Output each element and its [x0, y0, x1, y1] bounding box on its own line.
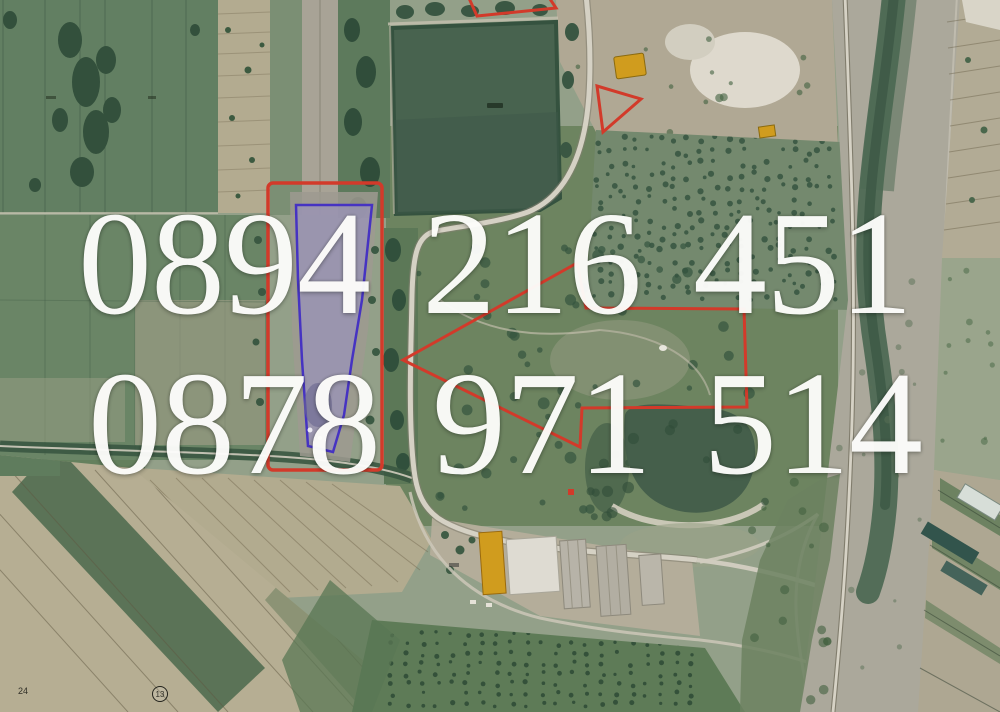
tree-dot [963, 268, 969, 274]
tree-dot [600, 654, 604, 658]
tree-dot [585, 692, 589, 696]
tree-dot [493, 705, 497, 709]
white-building [506, 536, 560, 594]
tree-dot [557, 671, 562, 676]
tree-dot [675, 690, 680, 695]
tree-dot [598, 692, 602, 696]
tree-dot [420, 630, 424, 634]
tree-dot [986, 330, 991, 335]
tree-dot [480, 641, 485, 646]
tree-dot [990, 362, 995, 367]
tree-dot [662, 161, 666, 165]
bare-terrain-top [556, 0, 838, 152]
tree-dot [708, 171, 714, 177]
tree-dot [740, 163, 745, 168]
tree-dot [524, 705, 527, 708]
tree-dot [481, 700, 485, 704]
tree-dot [696, 149, 701, 154]
tree-dot [897, 644, 902, 649]
tree-dot [674, 702, 678, 706]
tree-dot [742, 147, 746, 151]
tree-dot [435, 642, 438, 645]
tree-dot [510, 693, 513, 696]
tree-dot [554, 652, 558, 656]
orange-warehouse [479, 531, 506, 594]
tree-dot [511, 702, 516, 707]
tree-dot [817, 626, 826, 635]
tree-dot [739, 174, 745, 180]
tree-dot [617, 681, 622, 686]
tree-dot [421, 654, 424, 657]
tree-dot [711, 159, 715, 163]
tree-dot [448, 632, 451, 635]
tree-dot [819, 685, 829, 695]
scrub-right-middle [934, 258, 1000, 480]
tree-dot [751, 169, 756, 174]
tree-dot [437, 681, 441, 685]
tree-dot [632, 165, 636, 169]
tree-dot [947, 343, 952, 348]
tree-dot [823, 637, 831, 645]
tree-dot [788, 165, 792, 169]
tree-dot [570, 670, 574, 674]
tree-dot [606, 172, 610, 176]
tree-dot [671, 138, 676, 143]
tree-dot [819, 523, 829, 533]
tree-dot [585, 671, 590, 676]
tree-dot [434, 630, 437, 633]
tree-dot [683, 135, 689, 141]
tree-dot [966, 338, 971, 343]
tree-dot [526, 640, 530, 644]
tree-dot [614, 692, 619, 697]
watermark-phone-2: 0878 971 514 [88, 350, 922, 498]
tree-dot [671, 165, 675, 169]
tree-dot [710, 70, 714, 74]
tree-dot [542, 681, 546, 685]
tree-dot [569, 693, 574, 698]
tree-dot [632, 138, 636, 142]
tree-dot [715, 94, 723, 102]
tree-dot [449, 660, 452, 663]
tree-dot [466, 671, 470, 675]
tree-dot [478, 691, 482, 695]
tree-dot [569, 640, 573, 644]
tree-dot [797, 90, 803, 96]
tree-dot [591, 513, 598, 520]
tree-dot [388, 702, 392, 706]
tree-dot [465, 651, 470, 656]
tree-dot [673, 673, 677, 677]
tree-dot [779, 617, 787, 625]
tree-dot [464, 701, 469, 706]
tree-dot [659, 135, 664, 140]
tree-dot [602, 673, 606, 677]
tree-dot [688, 673, 692, 677]
tree-dot [464, 691, 468, 695]
tree-dot [677, 680, 682, 685]
tree-dot [403, 662, 408, 667]
tree-dot [632, 176, 636, 180]
tree-dot [814, 147, 820, 153]
circled-plot-number-label: 13 [156, 690, 165, 699]
tree-dot [688, 661, 693, 666]
tree-dot [645, 643, 649, 647]
tree-dot [463, 642, 467, 646]
tree-dot [659, 682, 663, 686]
tree-dot [478, 651, 483, 656]
tree-dot [524, 663, 529, 668]
tree-dot [646, 654, 650, 658]
tree-dot [629, 700, 634, 705]
tree-dot [948, 277, 952, 281]
tree-dot [725, 148, 731, 154]
tree-dot [710, 147, 715, 152]
tree-dot [600, 702, 605, 707]
tree-dot [434, 654, 439, 659]
tree-dot [599, 641, 604, 646]
tree-dot [848, 587, 854, 593]
tree-dot [606, 148, 611, 153]
tree-dot [814, 164, 818, 168]
tree-dot [595, 141, 601, 147]
tree-dot [613, 641, 616, 644]
tree-dot [764, 159, 770, 165]
tree-dot [675, 651, 680, 656]
tree-dot [739, 138, 745, 144]
tree-dot [599, 679, 604, 684]
tree-dot [752, 165, 757, 170]
tree-dot [576, 65, 581, 70]
tree-dot [419, 660, 424, 665]
tree-dot [481, 682, 486, 687]
tree-dot [687, 700, 692, 705]
tree-dot [406, 704, 411, 709]
tree-dot [495, 684, 500, 689]
tree-dot [479, 632, 484, 637]
tree-dot [553, 683, 557, 687]
tree-dot [631, 684, 636, 689]
tree-dot [422, 642, 427, 647]
tree-dot [579, 505, 587, 513]
tree-dot [632, 692, 637, 697]
tree-dot [659, 702, 662, 705]
tree-dot [918, 518, 922, 522]
tree-dot [675, 151, 681, 157]
tree-dot [727, 175, 733, 181]
tree-dot [629, 671, 633, 675]
tree-dot [650, 135, 654, 139]
aerial-map: 24 13 [0, 0, 1000, 712]
tree-dot [643, 694, 647, 698]
tree-dot [495, 670, 500, 675]
tree-dot [512, 632, 515, 635]
tree-dot [494, 633, 498, 637]
tree-dot [388, 681, 393, 686]
tree-dot [893, 599, 896, 602]
tree-dot [689, 694, 694, 699]
tree-dot [698, 139, 704, 145]
tree-dot [420, 681, 425, 686]
tree-dot [750, 633, 759, 642]
tree-dot [801, 55, 807, 61]
tree-dot [780, 585, 789, 594]
tree-dot [466, 633, 471, 638]
tree-dot [462, 505, 468, 511]
tree-dot [860, 665, 864, 669]
tree-dot [403, 650, 408, 655]
tree-dot [688, 160, 693, 165]
tree-dot [467, 664, 471, 668]
tree-dot [706, 36, 712, 42]
watermark-phone-1: 0894 216 451 [78, 190, 912, 338]
tree-dot [599, 662, 604, 667]
tree-dot [572, 651, 576, 655]
plot-number-label: 24 [18, 686, 28, 696]
tree-dot [449, 679, 453, 683]
tree-dot [450, 700, 455, 705]
tree-dot [646, 662, 650, 666]
tree-dot [421, 704, 425, 708]
tree-dot [793, 146, 799, 152]
tree-dot [827, 146, 832, 151]
tree-dot [761, 505, 766, 510]
tree-dot [508, 640, 512, 644]
tree-dot [793, 139, 798, 144]
tree-dot [671, 176, 676, 181]
tree-dot [804, 158, 809, 163]
tree-dot [523, 679, 528, 684]
tree-dot [557, 643, 562, 648]
tree-dot [523, 692, 527, 696]
tree-dot [809, 544, 814, 549]
tree-dot [607, 507, 618, 518]
tree-dot [585, 663, 589, 667]
tree-dot [404, 674, 409, 679]
tree-dot [690, 653, 693, 656]
tree-dot [799, 507, 807, 515]
tree-dot [658, 693, 661, 696]
tree-dot [494, 651, 498, 655]
tree-dot [781, 147, 785, 151]
tree-dot [510, 680, 514, 684]
tree-dot [508, 672, 512, 676]
illegible-parcel-number-mark [449, 563, 459, 567]
tree-dot [554, 664, 558, 668]
tree-dot [541, 693, 545, 697]
tree-dot [493, 641, 498, 646]
tree-dot [806, 695, 815, 704]
tree-dot [748, 526, 756, 534]
tree-dot [407, 680, 412, 685]
tree-dot [804, 82, 810, 88]
tree-dot [406, 642, 409, 645]
tree-dot [615, 650, 619, 654]
tree-dot [659, 660, 664, 665]
tree-dot [462, 680, 467, 685]
tree-dot [703, 176, 707, 180]
tree-dot [625, 173, 629, 177]
tree-dot [623, 147, 627, 151]
tree-dot [573, 660, 577, 664]
tree-dot [633, 146, 637, 150]
tree-dot [988, 341, 993, 346]
tree-dot [418, 670, 422, 674]
tree-dot [703, 100, 708, 105]
tree-dot [584, 652, 589, 657]
tree-dot [539, 640, 543, 644]
tree-dot [613, 700, 618, 705]
tree-dot [697, 158, 703, 164]
tree-dot [509, 650, 513, 654]
tree-dot [496, 661, 501, 666]
tree-dot [556, 690, 560, 694]
tree-dot [650, 173, 655, 178]
tree-dot [613, 673, 616, 676]
tree-dot [553, 702, 557, 706]
tree-dot [433, 704, 437, 708]
tree-dot [584, 705, 588, 709]
tree-dot [981, 438, 988, 445]
tree-dot [643, 682, 647, 686]
tree-dot [583, 684, 587, 688]
tree-dot [944, 371, 948, 375]
tree-dot [433, 672, 438, 677]
tree-dot [437, 663, 441, 667]
tree-dot [623, 161, 629, 167]
tree-dot [645, 148, 649, 152]
tree-dot [793, 177, 797, 181]
tree-dot [622, 134, 628, 140]
tree-dot [526, 673, 529, 676]
tree-dot [572, 701, 575, 704]
tree-dot [628, 663, 633, 668]
tree-dot [452, 673, 456, 677]
tree-dot [729, 81, 733, 85]
tree-dot [479, 661, 482, 664]
tree-dot [658, 674, 662, 678]
tree-dot [422, 691, 425, 694]
tree-dot [451, 653, 456, 658]
tree-dot [496, 692, 501, 697]
tree-dot [542, 670, 546, 674]
tree-dot [387, 673, 392, 678]
tree-dot [966, 319, 973, 326]
tree-dot [527, 652, 532, 657]
tree-dot [689, 685, 692, 688]
tree-dot [827, 175, 831, 179]
tree-dot [766, 543, 771, 548]
tree-dot [940, 439, 944, 443]
tree-dot [669, 84, 674, 89]
tree-dot [583, 643, 587, 647]
tree-dot [727, 136, 733, 142]
tree-dot [598, 150, 602, 154]
tree-dot [676, 661, 680, 665]
tree-dot [609, 164, 614, 169]
tree-dot [644, 47, 648, 51]
tree-dot [684, 154, 689, 159]
tree-dot [777, 174, 783, 180]
tree-dot [660, 651, 665, 656]
tree-dot [807, 152, 812, 157]
tree-dot [542, 663, 546, 667]
illegible-parcel-number-mark [487, 103, 503, 108]
tree-dot [660, 170, 665, 175]
tree-dot [512, 662, 517, 667]
tree-dot [542, 701, 546, 705]
tree-dot [391, 694, 395, 698]
